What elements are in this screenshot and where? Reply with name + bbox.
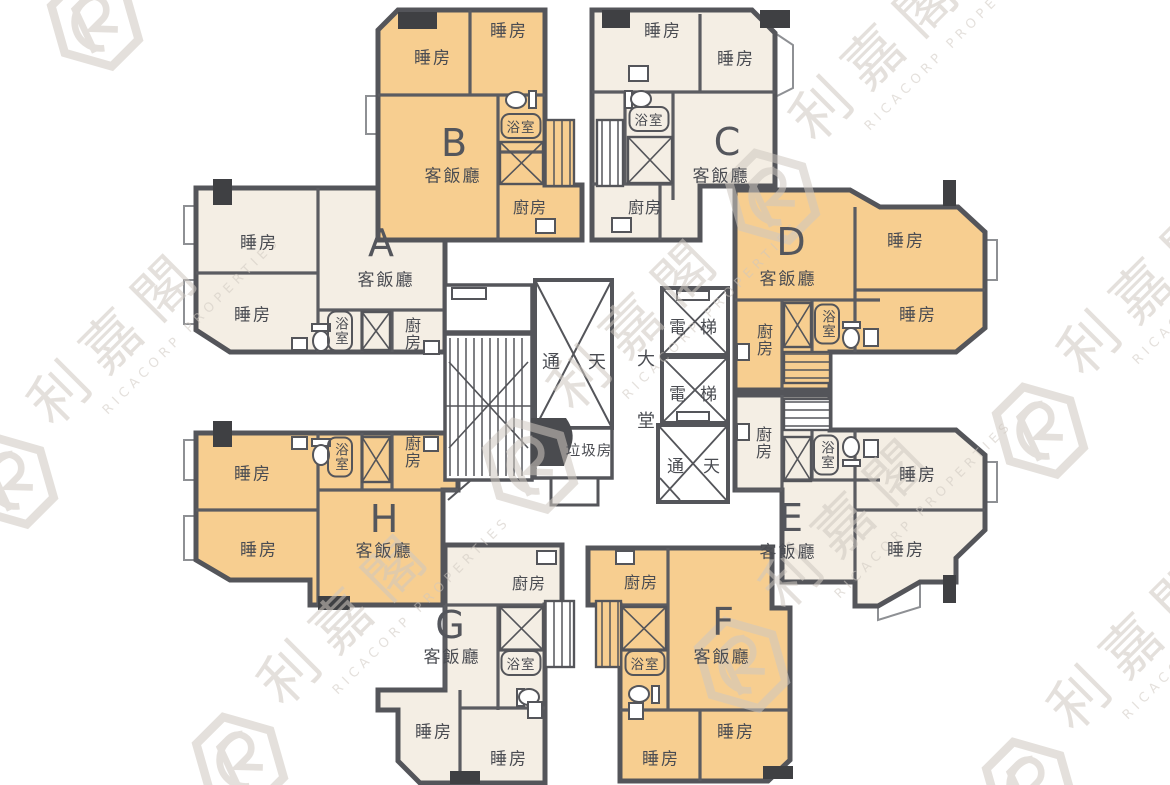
basin-icon bbox=[292, 437, 307, 449]
core-closet bbox=[551, 478, 598, 505]
stove-icon bbox=[616, 551, 634, 564]
toilet-icon bbox=[312, 324, 330, 351]
basin-icon bbox=[864, 440, 878, 457]
lift-lower-icon bbox=[662, 357, 728, 423]
stove-icon bbox=[536, 219, 555, 233]
stove-icon bbox=[424, 437, 438, 451]
stove-icon bbox=[737, 424, 749, 440]
toilet-icon bbox=[843, 437, 860, 466]
basin-icon bbox=[292, 338, 307, 350]
toilet-icon bbox=[625, 91, 651, 108]
basin-icon bbox=[528, 702, 542, 718]
lift-upper-icon bbox=[662, 288, 728, 355]
stairs-icon bbox=[445, 334, 532, 500]
stove-icon bbox=[612, 218, 631, 232]
floor-plan: 利嘉閣 RICACORP PROPERTIES 利嘉閣 RICACORP PRO… bbox=[0, 0, 1170, 785]
toilet-icon bbox=[843, 322, 860, 348]
stove-icon bbox=[424, 341, 439, 354]
toilet-icon bbox=[312, 439, 330, 465]
basin-icon bbox=[629, 703, 643, 719]
stove-icon bbox=[537, 551, 556, 564]
toilet-icon bbox=[629, 686, 659, 703]
basin-icon bbox=[864, 329, 878, 346]
lightwell-top-icon bbox=[535, 280, 612, 428]
lightwell-bottom-icon bbox=[658, 425, 728, 502]
duct-blob bbox=[531, 418, 573, 466]
floor-plan-drawing bbox=[0, 0, 1170, 785]
core bbox=[445, 280, 728, 505]
stove-icon bbox=[737, 344, 749, 360]
toilet-icon bbox=[506, 91, 536, 108]
basin-icon bbox=[629, 66, 648, 81]
